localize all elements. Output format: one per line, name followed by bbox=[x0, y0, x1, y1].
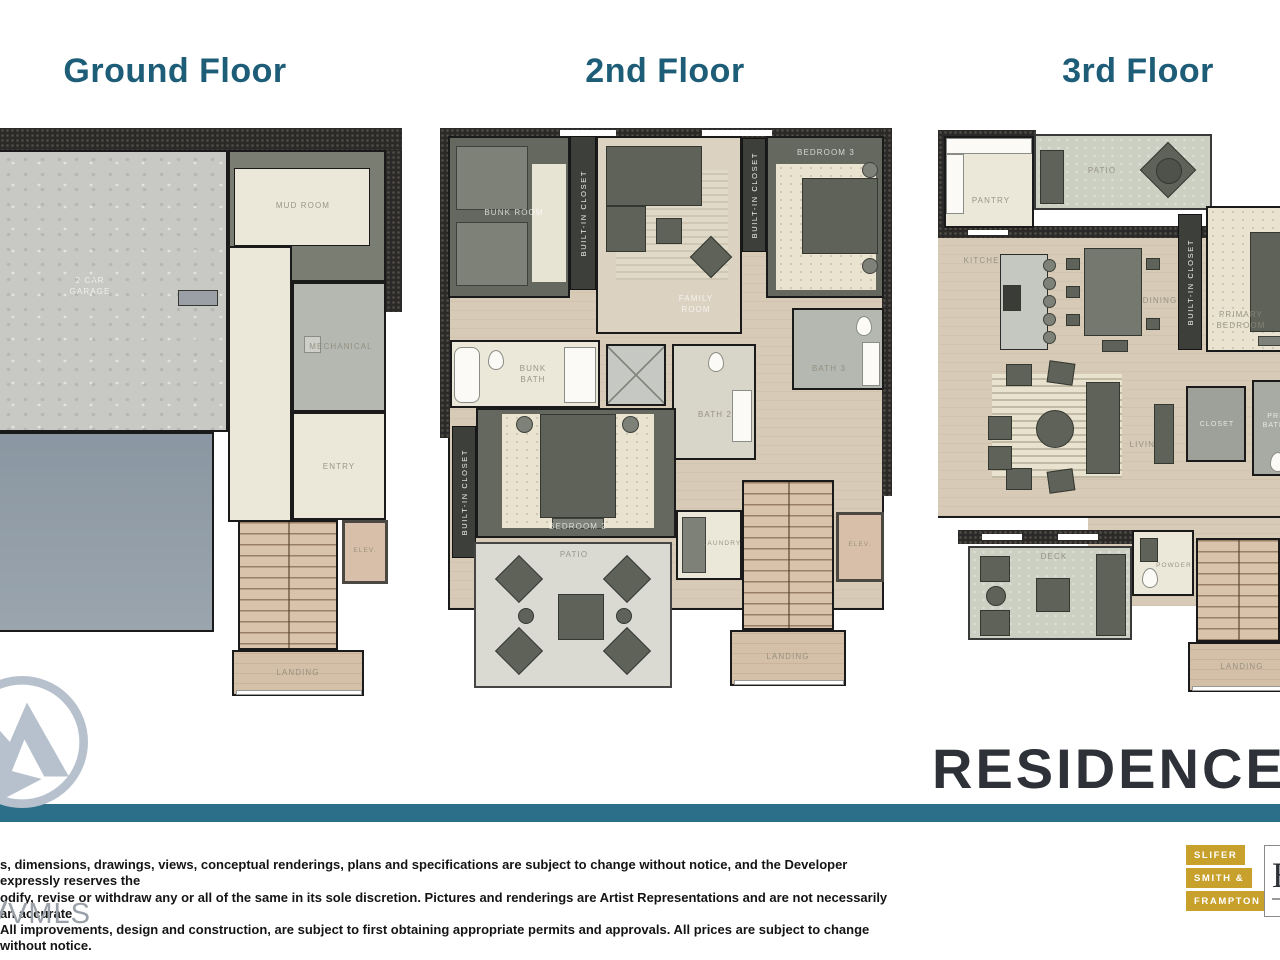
bedroom2-bed bbox=[540, 414, 616, 518]
patio-side-table-1 bbox=[518, 608, 534, 624]
mechanical-unit-icon bbox=[304, 336, 321, 353]
deck-chair-2 bbox=[980, 610, 1010, 636]
ground-right-wall bbox=[386, 150, 402, 312]
third-stairs bbox=[1196, 538, 1280, 642]
bedroom-3: BEDROOM 3 bbox=[766, 136, 884, 298]
bunk-room: BUNK ROOM bbox=[448, 136, 570, 298]
mechanical-room: MECHANICAL bbox=[292, 282, 386, 412]
mls-watermark: VMLS bbox=[0, 898, 91, 931]
entry-label: ENTRY bbox=[294, 462, 384, 473]
third-mid-window bbox=[968, 230, 1008, 235]
ground-hall bbox=[228, 246, 292, 522]
dining-chair-3 bbox=[1066, 314, 1080, 326]
second-landing: LANDING bbox=[730, 630, 846, 686]
second-patio-label: PATIO bbox=[554, 550, 594, 561]
shower-room bbox=[606, 344, 666, 406]
primary-bench bbox=[1258, 336, 1280, 346]
bar-stool-2 bbox=[1043, 277, 1056, 290]
pantry-label: PANTRY bbox=[968, 196, 1014, 207]
living-side-chair-2 bbox=[988, 446, 1012, 470]
ground-landing-label: LANDING bbox=[248, 668, 348, 679]
ground-top-wall bbox=[0, 128, 402, 150]
third-patio: PATIO bbox=[1034, 134, 1212, 210]
disclaimer-line-3: All improvements, design and constructio… bbox=[0, 922, 905, 955]
family-room: FAMILY ROOM bbox=[596, 136, 742, 334]
laundry-room: LAUNDRY bbox=[676, 510, 742, 580]
partner-logo-letter: E bbox=[1265, 846, 1280, 896]
deck-chair-1 bbox=[980, 556, 1010, 582]
bar-stool-4 bbox=[1043, 313, 1056, 326]
family-sectional-chaise bbox=[606, 206, 646, 252]
second-patio: PATIO bbox=[474, 542, 672, 688]
bunk-bath-toilet bbox=[488, 350, 504, 370]
deck-sofa bbox=[1096, 554, 1126, 636]
title-3rd-floor: 3rd Floor bbox=[988, 52, 1280, 91]
third-patio-label: PATIO bbox=[1080, 166, 1124, 177]
disclaimer-text: s, dimensions, drawings, views, conceptu… bbox=[0, 857, 905, 955]
second-landing-rail bbox=[734, 680, 844, 685]
bar-stool-5 bbox=[1043, 331, 1056, 344]
deck: DECK bbox=[968, 546, 1132, 640]
deck-label: DECK bbox=[1034, 552, 1074, 563]
bath-2: BATH 2 bbox=[672, 344, 756, 460]
bunk-bath-vanity bbox=[564, 347, 596, 403]
bedroom3-nightstand-2 bbox=[862, 258, 878, 274]
garage-room: 2 CAR GARAGE bbox=[0, 150, 228, 432]
bedroom-2: BEDROOM 2 bbox=[476, 408, 676, 538]
disclaimer-line-2: odify, revise or withdraw any or all of … bbox=[0, 890, 905, 923]
living-rug bbox=[992, 374, 1122, 478]
living-side-chair-1 bbox=[988, 416, 1012, 440]
third-floor-plan: PATIO PANTRY KITCHEN DINING BUILT-IN CLO… bbox=[938, 130, 1280, 692]
built-in-closet-band-1: BUILT-IN CLOSET bbox=[570, 136, 596, 290]
powder-sink bbox=[1140, 538, 1158, 562]
built-in-closet-label-3: BUILT-IN CLOSET bbox=[460, 449, 469, 535]
washer-dryer bbox=[682, 517, 706, 573]
partner-logo-box: E bbox=[1264, 845, 1280, 917]
primary-closet-label: CLOSET bbox=[1192, 420, 1242, 429]
primary-bedroom: PRIMARY BEDROOM bbox=[1206, 206, 1280, 352]
living-chair-3 bbox=[1006, 468, 1032, 490]
bunk-room-floor-strip bbox=[532, 164, 566, 282]
built-in-closet-label-1: BUILT-IN CLOSET bbox=[579, 170, 588, 256]
ground-landing-rail bbox=[236, 690, 362, 695]
patio-chair-2 bbox=[603, 555, 651, 603]
third-landing-label: LANDING bbox=[1196, 662, 1280, 673]
bedroom2-nightstand-1 bbox=[516, 416, 533, 433]
patio-fire-table bbox=[558, 594, 604, 640]
third-landing-rail bbox=[1192, 686, 1280, 691]
ground-elevator: ELEV. bbox=[342, 520, 388, 584]
bar-stool-1 bbox=[1043, 259, 1056, 272]
dining-chair-4 bbox=[1146, 258, 1160, 270]
living-chair-2 bbox=[1047, 360, 1076, 385]
partner-logo-rule bbox=[1272, 898, 1280, 900]
family-sectional bbox=[606, 146, 702, 206]
floorplan-sheet: { "page": { "accent": "#1e5d78", "bar_co… bbox=[0, 0, 1280, 960]
built-in-closet-label-2: BUILT-IN CLOSET bbox=[750, 152, 759, 238]
disclaimer-line-1: s, dimensions, drawings, views, conceptu… bbox=[0, 857, 905, 890]
entry-hall: ENTRY bbox=[292, 412, 386, 520]
powder-toilet bbox=[1142, 568, 1158, 588]
family-room-label: FAMILY ROOM bbox=[668, 294, 724, 316]
dining-chair-2 bbox=[1066, 286, 1080, 298]
third-landing: LANDING bbox=[1188, 642, 1280, 692]
bar-stool-3 bbox=[1043, 295, 1056, 308]
bedroom2-bench bbox=[552, 518, 604, 529]
mls-watermark-text: VMLS bbox=[0, 898, 91, 930]
ground-elevator-label: ELEV. bbox=[345, 547, 385, 556]
third-patio-sofa bbox=[1040, 150, 1064, 204]
bunk-bed-2 bbox=[456, 222, 528, 286]
bath3-label: BATH 3 bbox=[804, 364, 854, 375]
mud-room-label: MUD ROOM bbox=[263, 201, 343, 212]
garage-car-bumper bbox=[178, 290, 218, 306]
powder-room: POWDER bbox=[1132, 530, 1194, 596]
second-stairs bbox=[742, 480, 834, 630]
second-elevator-label: ELEV. bbox=[839, 541, 881, 550]
laundry-label: LAUNDRY bbox=[702, 540, 742, 549]
built-in-closet-band-2: BUILT-IN CLOSET bbox=[742, 138, 766, 252]
patio-side-table-2 bbox=[616, 608, 632, 624]
dining-chair-6 bbox=[1102, 340, 1128, 352]
residence-title: RESIDENCE bbox=[932, 736, 1280, 801]
dining-chair-5 bbox=[1146, 318, 1160, 330]
cooktop bbox=[1003, 285, 1021, 311]
brokerage-badges: SLIFER SMITH & FRAMPTON bbox=[1186, 845, 1268, 914]
bedroom3-bed bbox=[802, 178, 878, 254]
living-coffee-table bbox=[1036, 410, 1074, 448]
bedroom3-nightstand-1 bbox=[862, 162, 878, 178]
second-elevator: ELEV. bbox=[836, 512, 884, 582]
deck-fire-table bbox=[1036, 578, 1070, 612]
primary-closet: CLOSET bbox=[1186, 386, 1246, 462]
bunk-bath-tub bbox=[454, 347, 480, 403]
bath-3: BATH 3 bbox=[792, 308, 884, 390]
primary-bath-toilet bbox=[1270, 452, 1280, 472]
bunk-bath-label: BUNK BATH bbox=[512, 364, 554, 386]
pantry-counter-left bbox=[946, 154, 964, 214]
built-in-closet-label-4: BUILT-IN CLOSET bbox=[1186, 239, 1195, 325]
built-in-closet-band-4: BUILT-IN CLOSET bbox=[1178, 214, 1202, 350]
deck-round-table bbox=[986, 586, 1006, 606]
patio-chair-3 bbox=[495, 627, 543, 675]
patio-chair-4 bbox=[603, 627, 651, 675]
third-patio-fire-bowl bbox=[1156, 158, 1182, 184]
teal-divider-bar bbox=[0, 804, 1280, 822]
bath2-toilet bbox=[708, 352, 724, 372]
built-in-closet-band-3: BUILT-IN CLOSET bbox=[452, 426, 476, 558]
ground-floor-plan: 2 CAR GARAGE MUD ROOM MECHANICAL ENTRY E… bbox=[0, 128, 402, 694]
primary-bathroom-label: PRIMARY BATHROOM bbox=[1258, 412, 1280, 431]
third-deck-window-2 bbox=[1058, 534, 1098, 540]
driveway-slab bbox=[0, 432, 214, 632]
bath2-vanity bbox=[732, 390, 752, 442]
second-floor-plan: BUNK ROOM BUILT-IN CLOSET FAMILY ROOM BU… bbox=[440, 128, 892, 694]
garage-label: 2 CAR GARAGE bbox=[58, 276, 122, 298]
title-ground-floor: Ground Floor bbox=[25, 52, 325, 91]
mountain-logo-icon bbox=[0, 668, 96, 816]
bath3-vanity bbox=[862, 342, 880, 386]
primary-bathroom: PRIMARY BATHROOM bbox=[1252, 380, 1280, 476]
mud-room: MUD ROOM bbox=[234, 168, 370, 246]
kitchen-island bbox=[1000, 254, 1048, 350]
badge-frampton: FRAMPTON bbox=[1186, 891, 1268, 911]
bedroom2-nightstand-2 bbox=[622, 416, 639, 433]
pantry-counter-top bbox=[946, 138, 1032, 154]
bunk-bed-1 bbox=[456, 146, 528, 210]
patio-chair-1 bbox=[495, 555, 543, 603]
powder-label: POWDER bbox=[1154, 562, 1194, 571]
third-deck-window-1 bbox=[982, 534, 1022, 540]
bedroom3-label: BEDROOM 3 bbox=[778, 148, 874, 159]
hall-console-sofa bbox=[1154, 404, 1174, 464]
badge-slifer: SLIFER bbox=[1186, 845, 1245, 865]
title-2nd-floor: 2nd Floor bbox=[515, 52, 815, 91]
bunk-bath: BUNK BATH bbox=[450, 340, 600, 408]
badge-smith: SMITH & bbox=[1186, 868, 1252, 888]
pantry: PANTRY bbox=[944, 136, 1034, 228]
living-chair-1 bbox=[1006, 364, 1032, 386]
primary-bed bbox=[1250, 232, 1280, 332]
second-landing-label: LANDING bbox=[740, 652, 836, 663]
ground-stairs bbox=[238, 520, 338, 650]
dining-chair-1 bbox=[1066, 258, 1080, 270]
dining-table bbox=[1084, 248, 1142, 336]
living-chair-4 bbox=[1047, 468, 1076, 493]
ground-landing: LANDING bbox=[232, 650, 364, 696]
family-ottoman bbox=[656, 218, 682, 244]
living-sectional bbox=[1086, 382, 1120, 474]
bath3-toilet bbox=[856, 316, 872, 336]
